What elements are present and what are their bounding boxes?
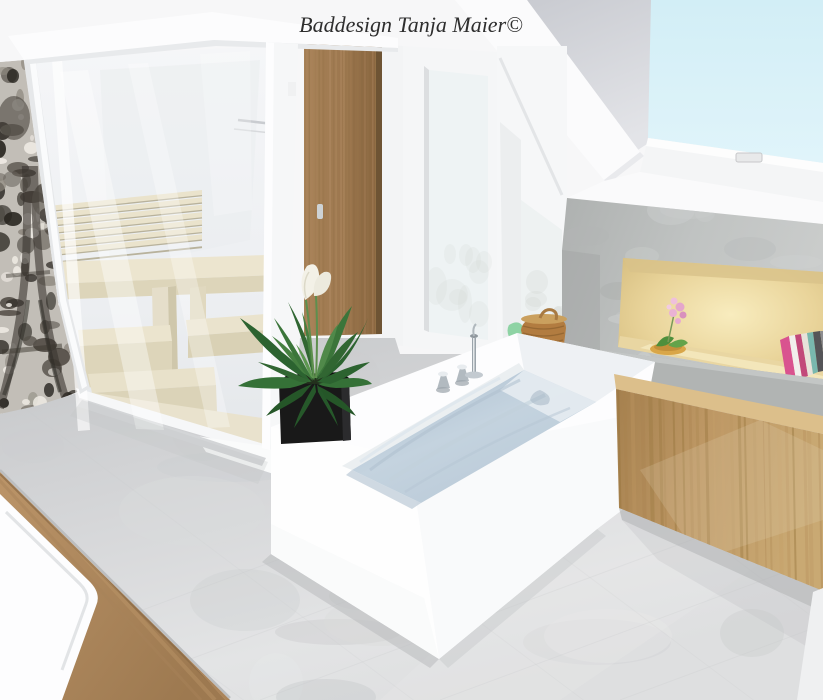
- svg-text:Baddesign Tanja Maier©: Baddesign Tanja Maier©: [299, 12, 523, 37]
